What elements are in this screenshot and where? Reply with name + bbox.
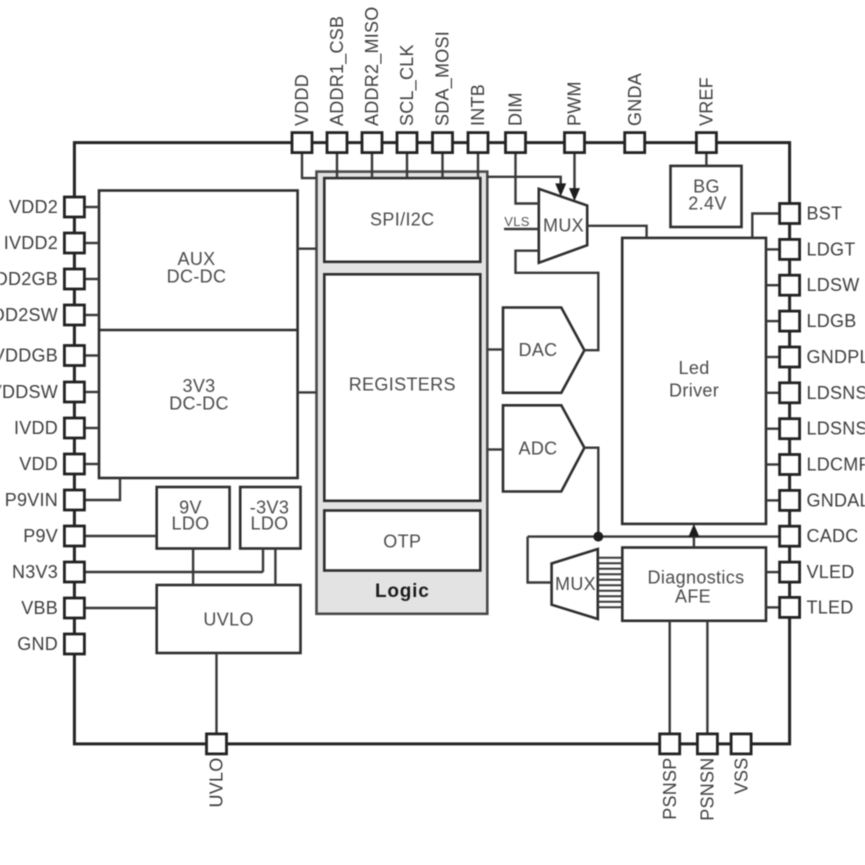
svg-text:DIM: DIM bbox=[506, 92, 526, 126]
svg-text:GNDPLD: GNDPLD bbox=[807, 347, 865, 367]
svg-text:LDSNSN: LDSNSN bbox=[807, 419, 865, 439]
svg-text:VSS: VSS bbox=[731, 758, 751, 795]
svg-text:GNDALD: GNDALD bbox=[807, 490, 865, 510]
svg-text:IVDDSW: IVDDSW bbox=[0, 382, 58, 402]
svg-text:VDDD: VDDD bbox=[292, 74, 312, 126]
svg-text:VLS: VLS bbox=[504, 214, 530, 229]
svg-text:N3V3: N3V3 bbox=[12, 562, 58, 582]
svg-text:IVDD: IVDD bbox=[14, 418, 58, 438]
svg-text:SCL_CLK: SCL_CLK bbox=[397, 44, 418, 126]
svg-text:AFE: AFE bbox=[675, 587, 711, 607]
svg-text:VDD: VDD bbox=[19, 454, 58, 474]
svg-text:MUX: MUX bbox=[543, 216, 584, 236]
svg-text:OTP: OTP bbox=[383, 532, 421, 552]
svg-text:SDA_MOSI: SDA_MOSI bbox=[433, 31, 454, 126]
svg-text:SPI/I2C: SPI/I2C bbox=[370, 210, 434, 230]
svg-text:2.4V: 2.4V bbox=[688, 194, 726, 214]
svg-text:REGISTERS: REGISTERS bbox=[349, 375, 456, 395]
svg-text:LDO: LDO bbox=[171, 514, 209, 534]
svg-text:LDO: LDO bbox=[250, 514, 288, 534]
svg-text:PSNSP: PSNSP bbox=[660, 758, 680, 820]
svg-text:UVLO: UVLO bbox=[203, 610, 253, 630]
svg-text:ADC: ADC bbox=[518, 439, 557, 459]
svg-text:ADDR2_MISO: ADDR2_MISO bbox=[362, 6, 383, 126]
svg-text:P9V: P9V bbox=[23, 526, 58, 546]
svg-text:CADC: CADC bbox=[807, 526, 859, 546]
svg-text:LDGT: LDGT bbox=[807, 239, 856, 259]
svg-text:BST: BST bbox=[807, 204, 843, 224]
svg-text:IVDDGB: IVDDGB bbox=[0, 346, 58, 366]
svg-text:Logic: Logic bbox=[375, 581, 430, 602]
svg-text:MUX: MUX bbox=[555, 574, 596, 594]
svg-text:VDD2SW: VDD2SW bbox=[0, 305, 58, 325]
svg-text:LDSNSP: LDSNSP bbox=[807, 383, 865, 403]
svg-text:DAC: DAC bbox=[518, 340, 557, 360]
svg-text:PWM: PWM bbox=[565, 81, 585, 126]
svg-text:LDSW: LDSW bbox=[807, 275, 860, 295]
svg-text:IVDD2: IVDD2 bbox=[4, 233, 58, 253]
svg-text:VLED: VLED bbox=[807, 562, 855, 582]
svg-text:GND: GND bbox=[17, 634, 58, 654]
svg-text:LDCMPP: LDCMPP bbox=[807, 455, 865, 475]
svg-text:INTB: INTB bbox=[468, 84, 488, 126]
svg-text:VBB: VBB bbox=[21, 598, 58, 618]
svg-text:P9VIN: P9VIN bbox=[5, 490, 58, 510]
svg-text:GNDA: GNDA bbox=[625, 73, 645, 126]
svg-text:DC-DC: DC-DC bbox=[169, 393, 229, 413]
svg-text:Led: Led bbox=[679, 358, 710, 378]
svg-text:Diagnostics: Diagnostics bbox=[648, 568, 745, 588]
svg-text:Driver: Driver bbox=[669, 381, 719, 401]
svg-text:VDD2: VDD2 bbox=[9, 197, 58, 217]
svg-text:UVLO: UVLO bbox=[207, 758, 227, 808]
svg-text:DC-DC: DC-DC bbox=[167, 267, 227, 287]
svg-text:LDGB: LDGB bbox=[807, 311, 857, 331]
svg-text:VREF: VREF bbox=[697, 77, 717, 126]
svg-text:ADDR1_CSB: ADDR1_CSB bbox=[327, 16, 348, 126]
svg-text:VDD2GB: VDD2GB bbox=[0, 269, 58, 289]
svg-text:PSNSN: PSNSN bbox=[698, 758, 718, 821]
svg-text:TLED: TLED bbox=[807, 597, 854, 617]
